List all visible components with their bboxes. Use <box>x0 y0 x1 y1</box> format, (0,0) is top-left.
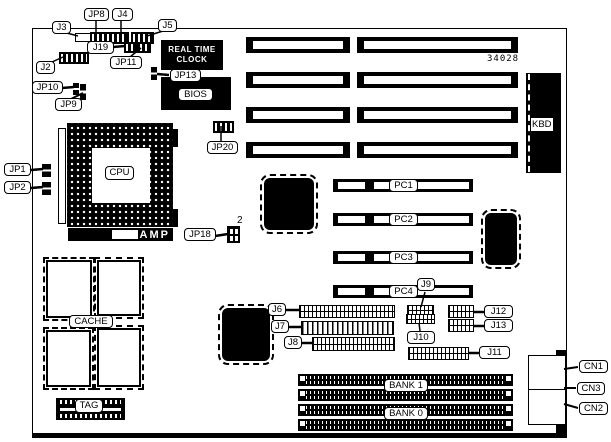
cache-chip-1 <box>46 260 92 318</box>
jp18-jumper-block <box>227 226 240 243</box>
j8-header <box>312 337 395 351</box>
simm-slot-4 <box>298 419 513 431</box>
callout-j8: J8 <box>284 336 302 349</box>
keyboard-connector: KBD <box>526 73 561 173</box>
callout-cn2: CN2 <box>579 402 608 415</box>
callout-j4: J4 <box>112 8 133 21</box>
cache-chip-2 <box>97 260 141 316</box>
jp1-jumper <box>42 164 51 177</box>
cache-label: CACHE <box>69 315 113 328</box>
isa-slot-r1c2 <box>357 37 518 53</box>
callout-cn1: CN1 <box>579 360 608 373</box>
amp-window <box>112 230 138 239</box>
isa-slot-r4c1 <box>246 142 350 158</box>
callout-jp9: JP9 <box>55 98 82 111</box>
jp13-jumper <box>151 67 157 80</box>
tag-label: TAG <box>75 399 103 413</box>
j7-header <box>301 321 394 335</box>
rtc-label-line1: REAL TIME <box>168 45 215 55</box>
isa-slot-r3c1 <box>246 107 350 123</box>
isa-slot-r3c2 <box>357 107 518 123</box>
j10-header <box>406 314 435 324</box>
kbd-label: KBD <box>531 118 553 131</box>
callout-j2: J2 <box>36 61 55 74</box>
qfp-chip-south <box>222 308 270 361</box>
isa-slot-r4c2 <box>357 142 518 158</box>
cache-chip-3 <box>46 330 91 387</box>
callout-cn3: CN3 <box>577 382 605 395</box>
callout-jp1: JP1 <box>4 163 31 176</box>
callout-j6: J6 <box>268 303 286 316</box>
callout-jp2: JP2 <box>4 181 31 194</box>
isa-slot-r2c1 <box>246 72 350 88</box>
memory-bank-label-bank1: BANK 1 <box>384 379 428 392</box>
amp-regulator-bar: AMP <box>68 228 173 241</box>
isa-slot-r2c2 <box>357 72 518 88</box>
cpu-lever-bar <box>58 128 66 224</box>
callout-jp18: JP18 <box>184 228 216 241</box>
memory-bank-label-bank0: BANK 0 <box>384 407 428 420</box>
motherboard-layout-diagram: PC1PC2PC3PC4BANK 1BANK 0J3JP8J4J5J19JP11… <box>0 0 611 442</box>
callout-jp11: JP11 <box>110 56 142 69</box>
cn-outline-top <box>528 355 566 391</box>
cpu-label: CPU <box>105 166 134 180</box>
qfp-chip-north <box>264 178 314 230</box>
callout-jp10: JP10 <box>32 81 63 94</box>
callout-j19: J19 <box>87 41 114 54</box>
jp2-jumper <box>42 182 51 195</box>
qfp-chip-east <box>485 213 517 265</box>
callout-jp8: JP8 <box>84 8 109 21</box>
callout-jp20: JP20 <box>207 141 238 154</box>
callout-j3: J3 <box>52 21 71 34</box>
callout-j9: J9 <box>417 278 435 291</box>
callout-j10: J10 <box>407 331 435 344</box>
pci-slot-label-pc3: PC3 <box>389 251 418 264</box>
part-number: 34028 <box>487 54 519 64</box>
callout-j11: J11 <box>479 346 510 359</box>
bios-label: BIOS <box>178 88 213 101</box>
amp-label: AMP <box>140 229 170 241</box>
jp9-jumper <box>80 84 86 100</box>
jp10-jumper <box>73 83 79 95</box>
j6-header <box>299 305 395 318</box>
j19-header <box>124 42 138 53</box>
j13-header <box>448 319 474 332</box>
callout-j5: J5 <box>158 19 177 32</box>
callout-j12: J12 <box>484 305 513 318</box>
isa-slot-r1c1 <box>246 37 350 53</box>
j2-header <box>59 52 89 64</box>
real-time-clock-chip: REAL TIME CLOCK <box>161 40 223 70</box>
callout-j7: J7 <box>271 320 289 333</box>
callout-j13: J13 <box>484 319 513 332</box>
pci-slot-label-pc2: PC2 <box>389 213 418 226</box>
pci-slot-label-pc4: PC4 <box>389 285 418 298</box>
jp18-pin2-marker: 2 <box>237 215 243 226</box>
cache-chip-4 <box>97 328 141 387</box>
pci-slot-label-pc1: PC1 <box>389 179 418 192</box>
cn-outline-bottom <box>528 389 566 425</box>
rtc-label-line2: CLOCK <box>177 55 208 65</box>
j11-header <box>408 347 469 360</box>
jp11-header <box>138 42 151 53</box>
j12-header <box>448 305 474 318</box>
jp20-header <box>213 121 234 133</box>
callout-jp13: JP13 <box>170 69 201 82</box>
